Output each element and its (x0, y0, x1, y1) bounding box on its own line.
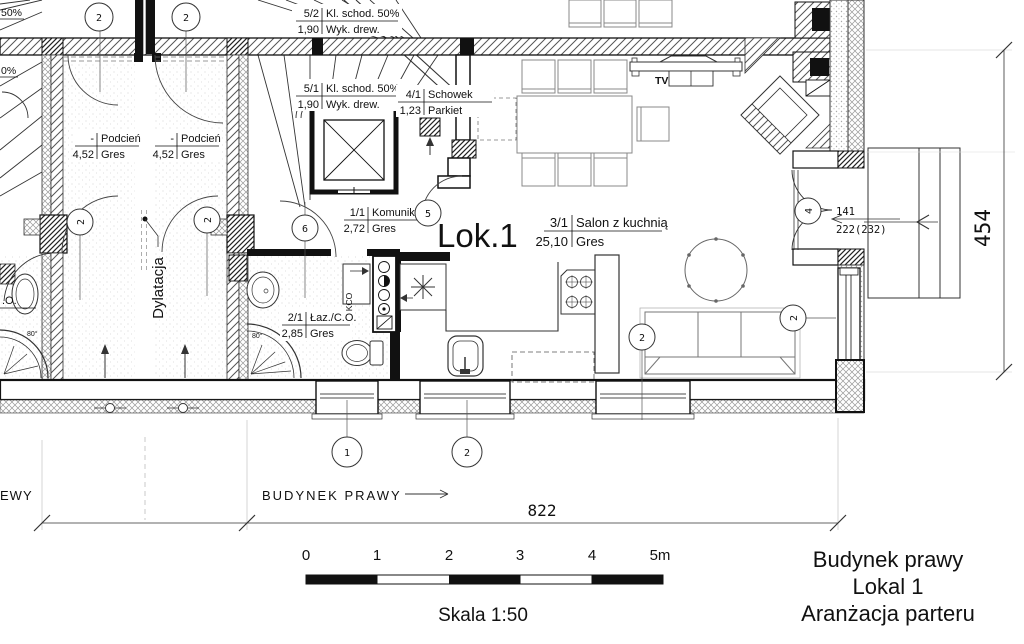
svg-text:2: 2 (203, 217, 214, 223)
cooker-asterisk-icon (411, 275, 435, 299)
svg-text:Podcień: Podcień (181, 133, 221, 145)
upper-floor-chairs (569, 0, 672, 27)
schowek-marker (420, 118, 440, 155)
svg-text:Schowek: Schowek (428, 89, 473, 101)
level-marker-icon (179, 404, 188, 413)
svg-text:-: - (90, 133, 94, 145)
building-left-partial-label: EWY (0, 488, 33, 503)
tv-unit (630, 56, 742, 86)
svg-text:1/1: 1/1 (350, 207, 365, 219)
svg-text:1,90: 1,90 (298, 24, 319, 36)
round-table (685, 239, 747, 301)
svg-text:4,52: 4,52 (153, 149, 174, 161)
level-marker-icon (106, 404, 115, 413)
room-label-lazienka: 2/1 Łaz./C.O. 2,85 Gres (280, 308, 356, 341)
north-wall (0, 0, 830, 62)
floor-plan-drawing: 5/2 Kl. schod. 50% 1,90 Wyk. drew. 5/1 K… (0, 0, 1024, 644)
svg-text:1,23: 1,23 (400, 105, 421, 117)
marker-window-2: 2 (452, 437, 482, 467)
svg-text:2: 2 (789, 315, 800, 321)
svg-text:2: 2 (96, 13, 102, 24)
svg-text:4: 4 (804, 208, 815, 214)
svg-text:5/1: 5/1 (304, 83, 319, 95)
dim-total-width: 822 (528, 501, 557, 520)
svg-text:Gres: Gres (576, 234, 605, 249)
svg-text:2/1: 2/1 (288, 312, 303, 324)
partial-stair-label-upper: 50% (1, 7, 22, 19)
window-3 (592, 381, 694, 419)
unit-label: Lok.1 (437, 217, 518, 254)
svg-text:2: 2 (76, 219, 87, 225)
kco-label: KCO (344, 292, 354, 311)
fireplace (741, 2, 836, 154)
entrance-bay (864, 148, 960, 298)
title-block: Budynek prawy Lokal 1 Aranżacja parteru (801, 547, 975, 626)
room-label-kl-schod-1: 5/1 Kl. schod. 50% 1,90 Wyk. drew. (292, 79, 402, 111)
sink-drain-icon (264, 289, 268, 293)
stairwell-east-wall (438, 55, 476, 188)
marker-entry-left: 2 (67, 209, 93, 235)
svg-text:4,52: 4,52 (73, 149, 94, 161)
svg-text:1,90: 1,90 (298, 99, 319, 111)
svg-text:-: - (170, 133, 174, 145)
room-label-kl-schod-2: 5/2 Kl. schod. 50% 1,90 Wyk. drew. (292, 4, 402, 36)
svg-text:3/1: 3/1 (550, 215, 568, 230)
scale-label: Skala 1:50 (438, 605, 528, 626)
tall-cabinet (595, 255, 619, 373)
marker-entry-right: 2 (194, 207, 220, 233)
scale-bar: 0 1 2 3 4 5m Skala 1:50 (302, 547, 671, 626)
shower-angle-left: 80° (27, 330, 38, 338)
south-windows (312, 381, 694, 419)
svg-text:2: 2 (464, 448, 470, 459)
marker-komunikacja-door: 6 (292, 215, 318, 241)
svg-text:Łaz./C.O.: Łaz./C.O. (310, 312, 356, 324)
svg-text:Gres: Gres (310, 328, 334, 340)
living-furniture (640, 237, 800, 378)
scale-tick-4: 4 (588, 547, 596, 564)
marker-window-1: 1 (332, 437, 362, 467)
title-line-2: Lokal 1 (853, 574, 924, 599)
counter-edge (446, 262, 558, 331)
svg-text:25,10: 25,10 (535, 234, 568, 249)
marker-sofa-right: 2 (780, 305, 806, 331)
scale-tick-2: 2 (445, 547, 453, 564)
elevator-shaft (312, 108, 396, 193)
dining-set (517, 0, 672, 186)
scale-tick-0: 0 (302, 547, 310, 564)
marker-terrace-door: 4 (795, 198, 821, 224)
tv-screen (660, 56, 717, 62)
scale-tick-1: 1 (373, 547, 381, 564)
svg-text:Parkiet: Parkiet (428, 105, 462, 117)
arrow-up-icon (426, 137, 434, 146)
building-right-label: BUDYNEK PRAWY (262, 488, 402, 503)
toilet-tank (370, 341, 383, 365)
title-line-1: Budynek prawy (813, 547, 963, 572)
room-label-podcien-left: - Podcień 4,52 Gres (73, 129, 141, 162)
floor-plan-page: 5/2 Kl. schod. 50% 1,90 Wyk. drew. 5/1 K… (0, 0, 1024, 644)
kitchen (400, 255, 619, 376)
scale-tick-3: 3 (516, 547, 524, 564)
title-line-3: Aranżacja parteru (801, 601, 975, 626)
cooktop (561, 270, 595, 314)
partial-stair-label-lower: 0% (1, 65, 16, 77)
svg-text:Gres: Gres (181, 149, 205, 161)
tv-label: TV (655, 75, 668, 87)
scale-tick-5: 5m (650, 547, 671, 564)
staircase-left-partial (0, 0, 42, 196)
marker-schowek-door: 5 (415, 200, 441, 226)
dylatacja-label: Dylatacja (150, 257, 167, 319)
room-label-podcien-right: - Podcień 4,52 Gres (153, 129, 221, 162)
svg-text:2,72: 2,72 (344, 223, 365, 235)
partial-co-label: .O. (2, 295, 17, 307)
svg-text:Wyk. drew.: Wyk. drew. (326, 99, 380, 111)
room-label-salon: 3/1 Salon z kuchnią 25,10 Gres (535, 213, 668, 250)
svg-text:Wyk. drew.: Wyk. drew. (326, 24, 380, 36)
svg-text:5: 5 (425, 209, 431, 220)
svg-text:2,85: 2,85 (282, 328, 303, 340)
dim-door-height: 222(232) (836, 224, 887, 236)
svg-text:4/1: 4/1 (406, 89, 421, 101)
svg-text:6: 6 (302, 224, 308, 235)
svg-text:Gres: Gres (372, 223, 396, 235)
room-label-schowek: 4/1 Schowek 1,23 Parkiet (396, 85, 494, 117)
svg-text:Kl. schod. 50%: Kl. schod. 50% (326, 8, 400, 20)
marker-sofa-left: 2 (629, 324, 655, 350)
svg-text:2: 2 (183, 13, 189, 24)
dining-table (517, 96, 632, 153)
dim-door-width: 141 (836, 206, 855, 218)
svg-text:Gres: Gres (101, 149, 125, 161)
svg-text:1: 1 (344, 448, 350, 459)
installation-shaft (373, 256, 396, 332)
svg-text:Salon z kuchnią: Salon z kuchnią (576, 215, 669, 230)
dim-total-height: 454 (971, 209, 995, 247)
window-2 (416, 381, 514, 419)
sofa (640, 308, 800, 378)
svg-text:Podcień: Podcień (101, 133, 141, 145)
marker-top-door-left: 2 (85, 3, 113, 31)
svg-text:5/2: 5/2 (304, 8, 319, 20)
faucet-icon (460, 369, 470, 374)
marker-top-door-right: 2 (172, 3, 200, 31)
svg-text:2: 2 (639, 333, 645, 344)
shower-angle-right: 80° (252, 332, 263, 340)
svg-text:Kl. schod. 50%: Kl. schod. 50% (326, 83, 400, 95)
